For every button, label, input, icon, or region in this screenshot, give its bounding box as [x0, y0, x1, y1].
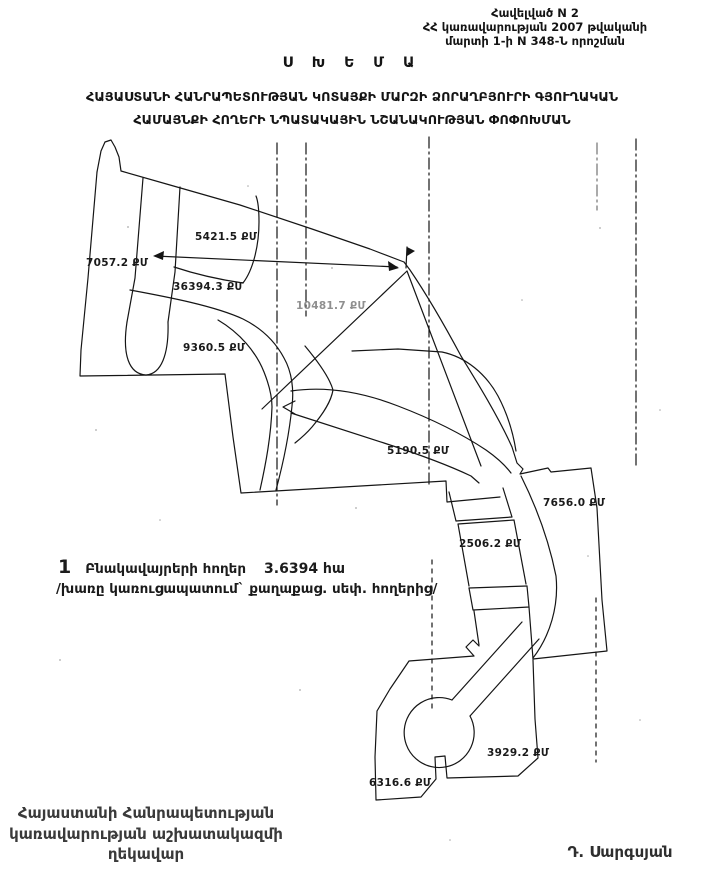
scanned-document-page: Հավելված N 2 ՀՀ կառավարության 2007 թվակա… [0, 0, 704, 877]
sight-lines [262, 271, 481, 466]
signatory-line-1: Հայաստանի Հանրապետության [4, 803, 288, 824]
area-label: 3929.2 ՔՄ [487, 747, 549, 759]
centerlines-dashed [432, 560, 596, 762]
signatory-line-3: ղեկավար [4, 844, 288, 865]
centerlines-dashdot [277, 137, 636, 505]
cadastral-map-svg [0, 0, 704, 877]
signatory-title: Հայաստանի Հանրապետության կառավարության ա… [4, 803, 288, 865]
area-label: 36394.3 ՔՄ [173, 281, 243, 293]
legend: 1 Բնակավայրերի հողեր 3.6394 հա [58, 556, 345, 578]
area-label: 2506.2 ՔՄ [459, 538, 521, 550]
area-label: 5421.5 ՔՄ [195, 231, 257, 243]
bottom-parcel-block [375, 622, 539, 800]
signatory-line-2: կառավարության աշխատակազմի [4, 824, 288, 845]
area-label: 6316.6 ՔՄ [369, 777, 431, 789]
neck-parcel-strips [449, 488, 533, 659]
left-parcel-strips [125, 178, 180, 375]
scan-noise [59, 185, 661, 841]
legend-label: Բնակավայրերի հողեր [85, 561, 246, 577]
signature-name: Դ. Սարգսյան [540, 843, 700, 861]
area-label: 7057.2 ՔՄ [86, 257, 148, 269]
legend-note: /խառը կառուցապատում` քաղաքաց. սեփ. հողեր… [56, 581, 437, 597]
cadastral-map: 5421.5 ՔՄ7057.2 ՔՄ36394.3 ՔՄ10481.7 ՔՄ93… [0, 0, 704, 877]
area-label: 9360.5 ՔՄ [183, 342, 245, 354]
area-label: 7656.0 ՔՄ [543, 497, 605, 509]
area-label: 5190.5 ՔՄ [387, 445, 449, 457]
road-network [130, 290, 516, 490]
legend-number: 1 [58, 556, 71, 578]
legend-value: 3.6394 հա [264, 561, 345, 577]
area-label: 10481.7 ՔՄ [296, 300, 366, 312]
